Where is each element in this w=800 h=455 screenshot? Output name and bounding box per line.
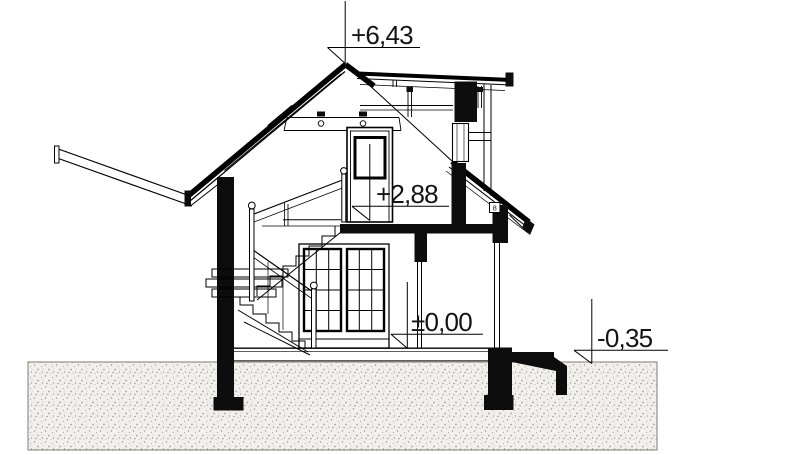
level-marker-site: -0,35 — [574, 299, 668, 364]
level-label-attic-floor: +2,88 — [376, 179, 438, 209]
level-label-ground-floor: ±0,00 — [411, 307, 472, 337]
background-eave-left — [55, 146, 193, 206]
newel-post — [248, 202, 255, 301]
section-drawing: 8 — [0, 0, 800, 455]
newel-post — [310, 282, 317, 348]
level-label-ridge: +6,43 — [351, 20, 413, 50]
level-label-site: -0,35 — [597, 323, 653, 353]
ground-floor-slab — [217, 348, 512, 362]
bolt-detail — [317, 112, 325, 117]
level-marker-ground-floor: ±0,00 — [391, 282, 483, 348]
bolt-detail — [359, 112, 367, 117]
left-foundation — [214, 397, 244, 411]
wall-plate-dim-label: 8 — [493, 204, 497, 213]
newel-post — [341, 168, 347, 222]
level-marker-ridge: +6,43 — [328, 1, 421, 64]
roof-left-slope — [185, 65, 346, 207]
chimney — [452, 82, 478, 230]
right-foundation — [484, 348, 514, 410]
